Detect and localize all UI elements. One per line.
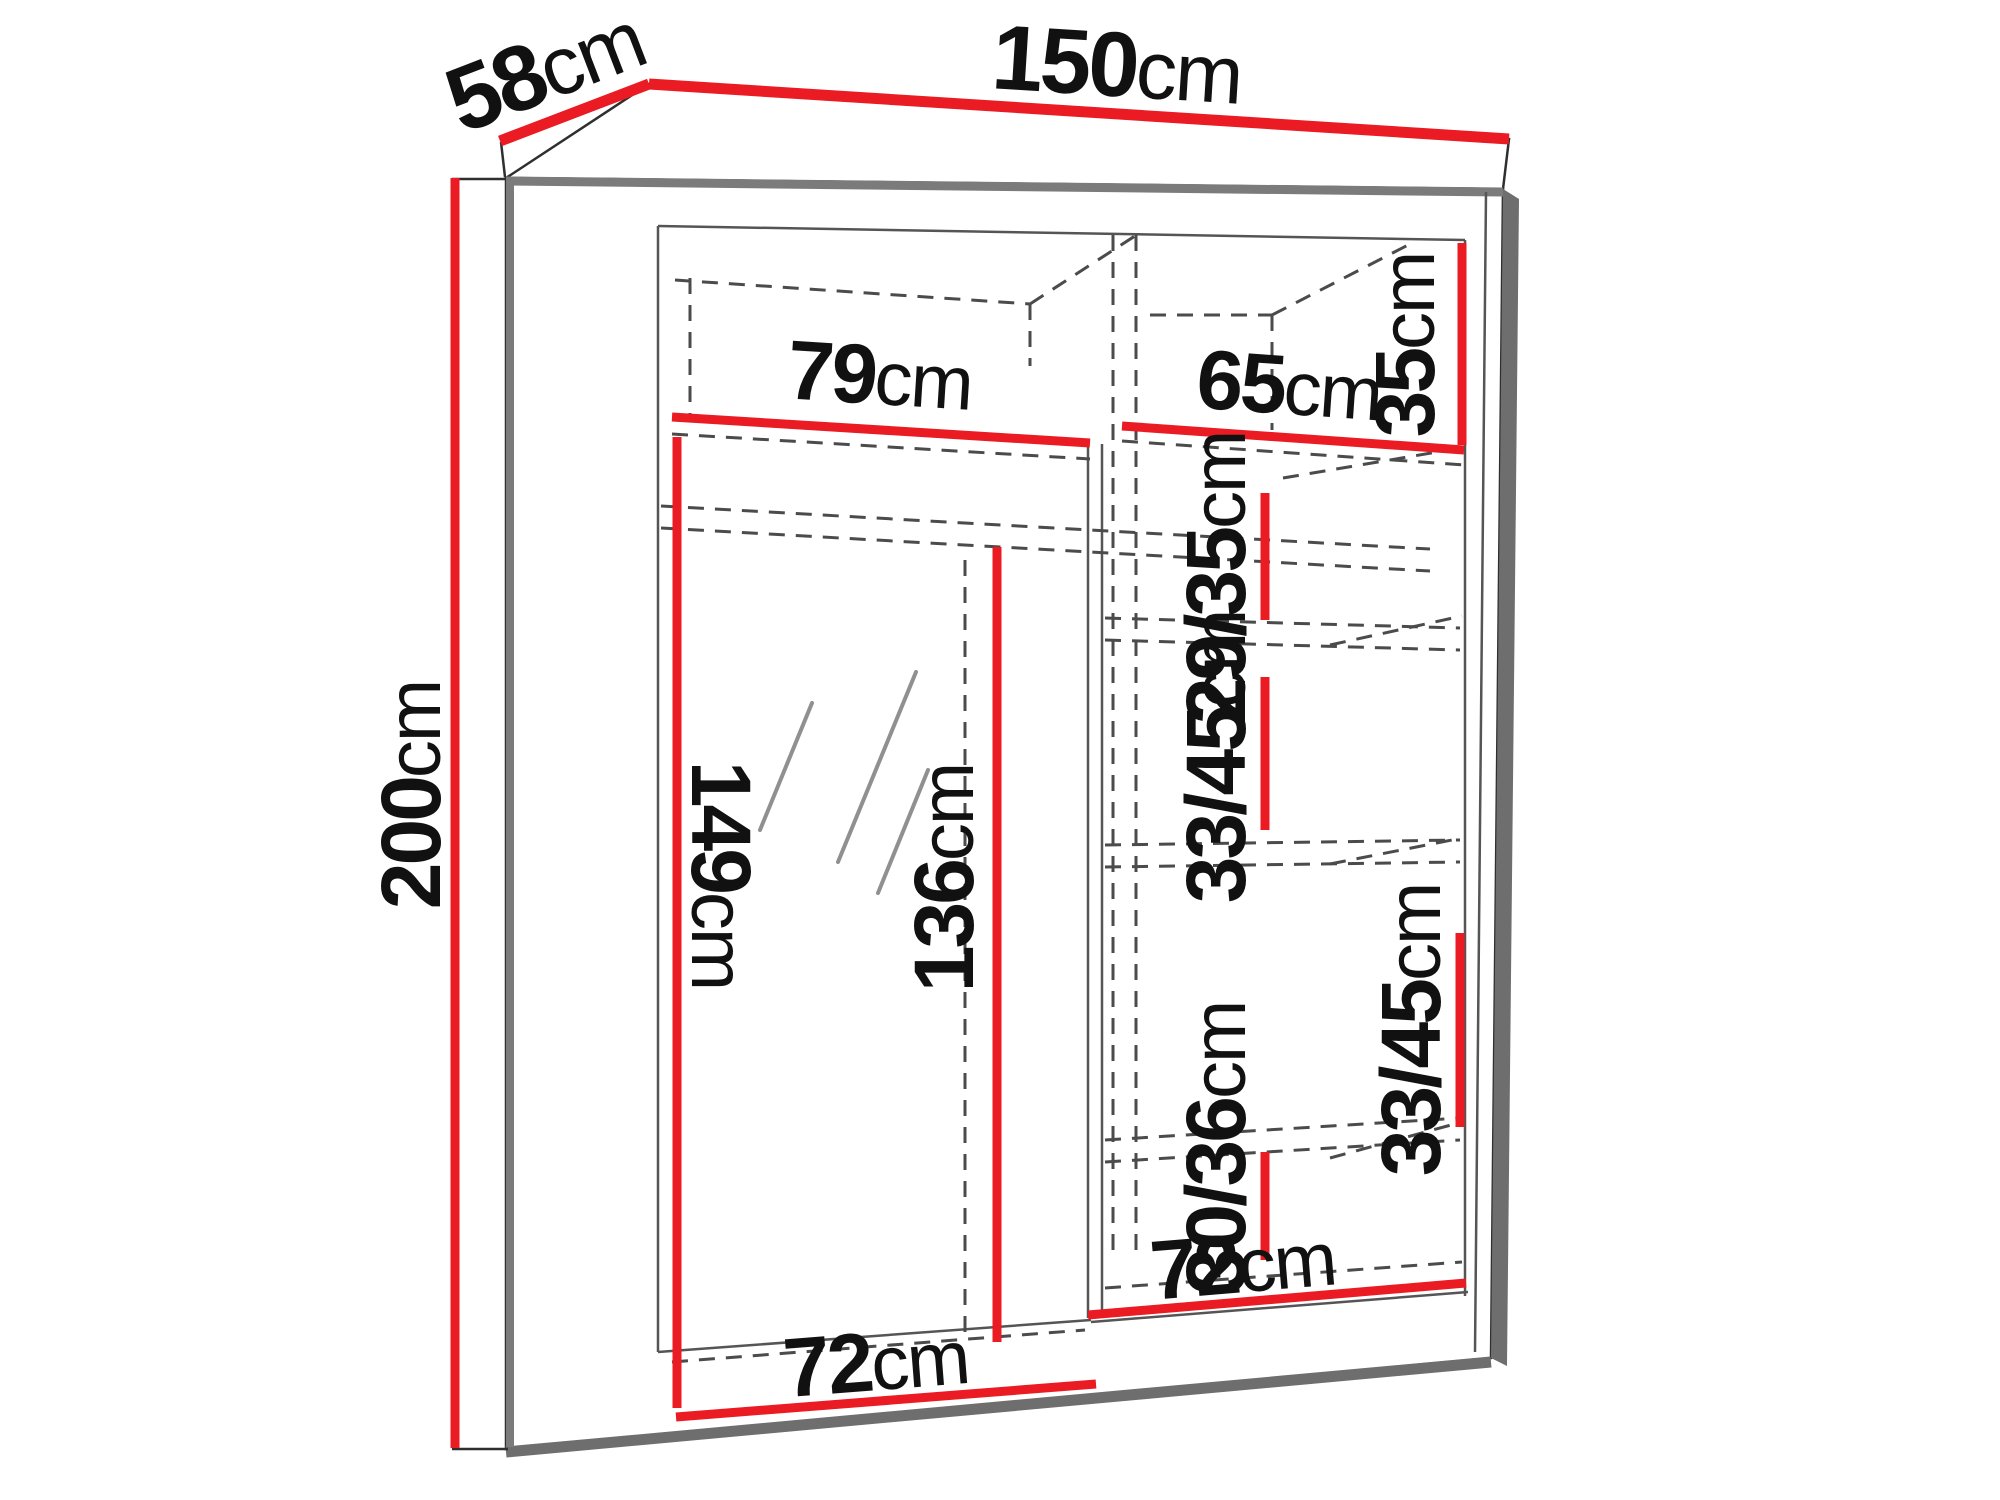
label-top-compartment-height: 35cm bbox=[1358, 253, 1452, 438]
label-overall-height: 200cm bbox=[364, 681, 458, 909]
diagram-canvas: 150cm 58cm 200cm 79cm 65cm 35cm 29/35cm … bbox=[0, 0, 2000, 1500]
label-lower-section-height: 33/45cm bbox=[1364, 884, 1458, 1177]
label-middle-section-height: 33/45cm bbox=[1169, 611, 1263, 904]
label-left-floor-width: 72cm bbox=[780, 1307, 972, 1415]
label-mirror-door-height: 149cm bbox=[674, 761, 768, 989]
wardrobe-dimension-diagram: 150cm 58cm 200cm 79cm 65cm 35cm 29/35cm … bbox=[0, 0, 2000, 1500]
label-right-floor-width: 72cm bbox=[1147, 1209, 1339, 1318]
top-left-step bbox=[501, 142, 505, 177]
label-overall-width: 150cm bbox=[989, 6, 1245, 123]
label-inner-door-height: 136cm bbox=[897, 764, 991, 992]
